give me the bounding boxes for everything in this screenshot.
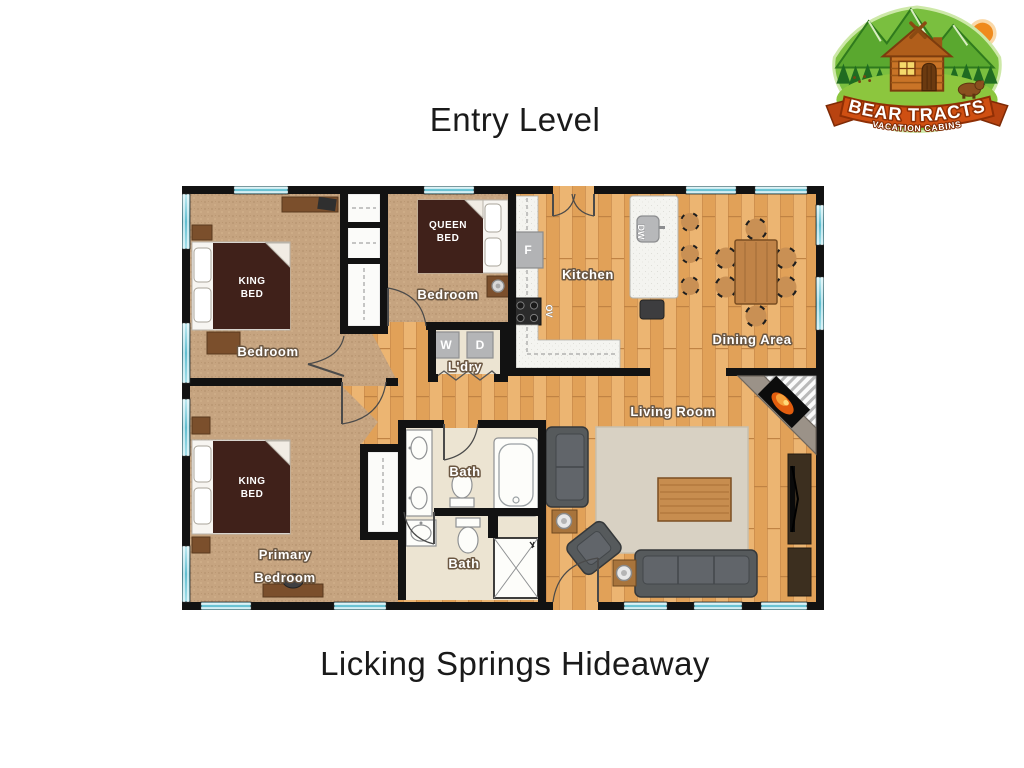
dresser-bedroom-1: [282, 197, 338, 212]
shower: [494, 538, 538, 598]
logo-graphic: BEAR TRACTS VACATION CABINS: [818, 3, 1016, 138]
side-table-1: [552, 510, 577, 533]
window-top-4: [755, 186, 807, 194]
label-bath-1: Bath: [449, 464, 480, 479]
dishwasher-label: DW: [636, 225, 646, 240]
svg-text:BED: BED: [241, 289, 264, 300]
svg-text:BED: BED: [437, 233, 460, 244]
bath1-vanity: [406, 430, 432, 516]
oven-label: OV: [544, 304, 554, 317]
label-kitchen: Kitchen: [562, 267, 614, 282]
label-dining-area: Dining Area: [712, 332, 791, 347]
coffee-table: [658, 478, 731, 521]
window-bottom-2: [334, 602, 386, 610]
window-left-1: [182, 194, 190, 249]
dryer-label: D: [476, 338, 485, 352]
washer: W: [433, 332, 459, 358]
island-stools: [678, 210, 701, 297]
patio-door-gap: [553, 602, 598, 610]
primary-closet: [368, 452, 398, 532]
king-bed-2-label: KING: [239, 476, 266, 487]
label-bedroom-1: Bedroom: [237, 344, 298, 359]
window-right-2: [816, 277, 824, 330]
fridge-label: F: [524, 243, 531, 257]
floor-plan: F OV DW KING BED: [182, 186, 824, 610]
window-top-2: [424, 186, 474, 194]
label-laundry: L'dry: [448, 359, 482, 374]
bed-king-2: KING BED: [192, 440, 290, 534]
label-primary-1: Primary: [259, 547, 312, 562]
sofa-bottom: [635, 550, 757, 597]
window-bottom-1: [201, 602, 251, 610]
bed-king-1: KING BED: [192, 242, 290, 330]
window-bottom-5: [761, 602, 807, 610]
side-table-2: [613, 560, 636, 586]
dining-table: [735, 240, 777, 304]
window-right-1: [816, 205, 824, 245]
tv-console: [788, 454, 811, 596]
island-stool-dark: [640, 300, 664, 319]
label-living-room: Living Room: [630, 404, 715, 419]
svg-text:BED: BED: [241, 489, 264, 500]
dryer: D: [467, 332, 493, 358]
brand-logo: BEAR TRACTS VACATION CABINS: [818, 3, 1016, 138]
label-bath-2: Bath: [448, 556, 479, 571]
label-bedroom-2: Bedroom: [417, 287, 478, 302]
window-bottom-4: [694, 602, 742, 610]
washer-label: W: [440, 338, 452, 352]
nightstand-bedroom-2: [487, 276, 509, 297]
refrigerator: F: [513, 232, 543, 268]
entry-door-gap: [553, 186, 594, 194]
window-left-2: [182, 323, 190, 383]
window-left-3: [182, 399, 190, 456]
queen-bed-label: QUEEN: [429, 220, 467, 231]
bath2-sink: [406, 520, 436, 546]
window-left-4: [182, 546, 190, 602]
window-bottom-3: [624, 602, 667, 610]
bath2-toilet: [456, 518, 480, 553]
window-top-1: [234, 186, 288, 194]
label-primary-2: Bedroom: [254, 570, 315, 585]
king-bed-1-label: KING: [239, 276, 266, 287]
property-name: Licking Springs Hideaway: [0, 645, 1024, 683]
floor-plan-graphic: F OV DW KING BED: [182, 186, 824, 610]
bed-queen: QUEEN BED: [418, 200, 508, 273]
window-top-3: [686, 186, 736, 194]
sofa-left: [546, 427, 588, 507]
bathtub: [494, 438, 538, 516]
